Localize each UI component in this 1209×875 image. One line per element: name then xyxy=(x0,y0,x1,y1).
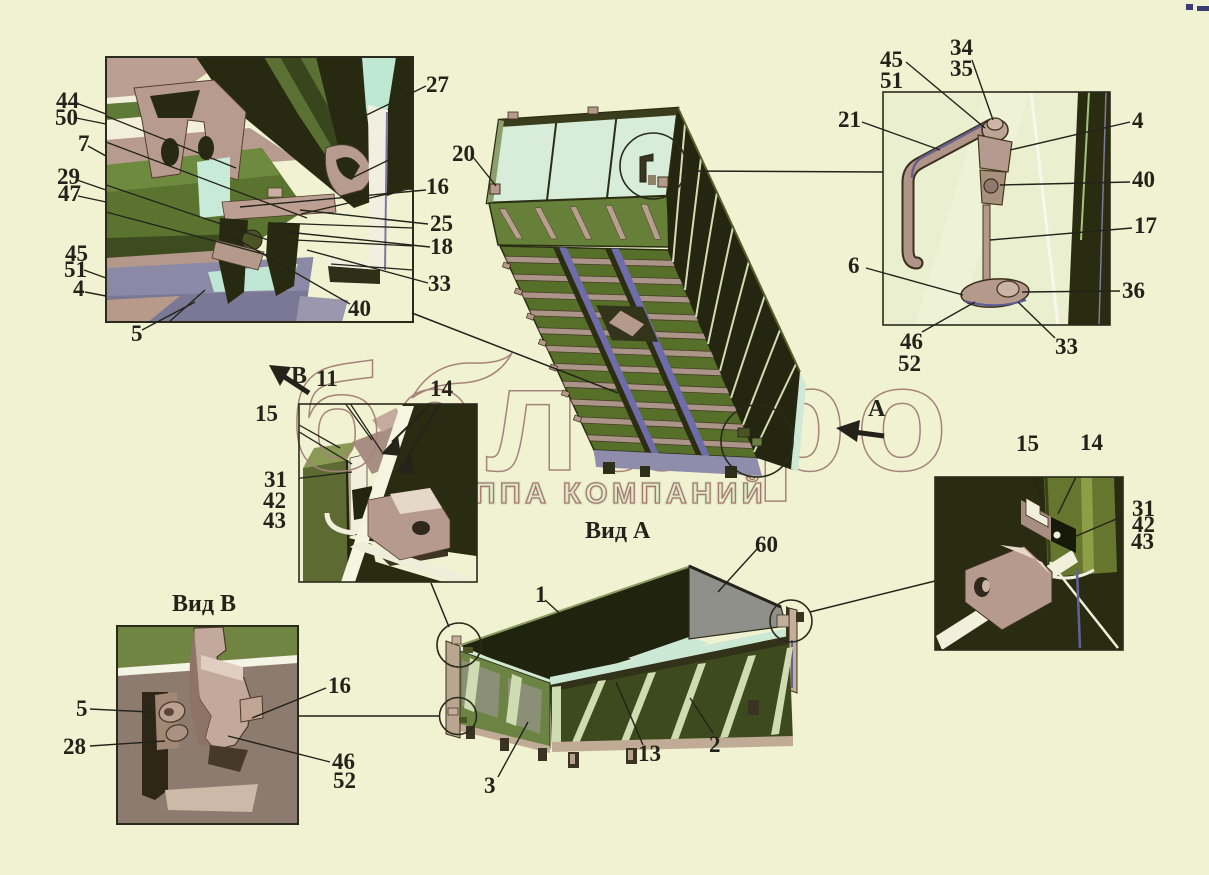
svg-text:5: 5 xyxy=(131,321,143,346)
svg-text:16: 16 xyxy=(328,673,351,698)
svg-text:27: 27 xyxy=(426,72,449,97)
svg-text:11: 11 xyxy=(316,366,338,391)
svg-text:Вид А: Вид А xyxy=(585,518,651,544)
svg-text:50: 50 xyxy=(55,105,78,130)
svg-text:33: 33 xyxy=(428,271,451,296)
svg-text:33: 33 xyxy=(1055,334,1078,359)
svg-text:28: 28 xyxy=(63,734,86,759)
svg-text:В: В xyxy=(291,363,307,389)
svg-text:А: А xyxy=(868,396,886,422)
svg-text:14: 14 xyxy=(430,376,454,401)
svg-text:43: 43 xyxy=(263,508,286,533)
svg-text:43: 43 xyxy=(1131,529,1154,554)
svg-text:15: 15 xyxy=(1016,431,1039,456)
svg-text:Вид В: Вид В xyxy=(172,591,236,617)
svg-text:25: 25 xyxy=(430,211,453,236)
svg-text:51: 51 xyxy=(880,68,903,93)
svg-text:7: 7 xyxy=(78,131,90,156)
svg-text:16: 16 xyxy=(426,174,449,199)
svg-text:4: 4 xyxy=(73,276,85,301)
svg-text:14: 14 xyxy=(1080,430,1104,455)
svg-text:52: 52 xyxy=(333,768,356,793)
svg-text:40: 40 xyxy=(1132,167,1155,192)
svg-text:3: 3 xyxy=(484,773,496,798)
svg-text:52: 52 xyxy=(898,351,921,376)
svg-text:15: 15 xyxy=(255,401,278,426)
svg-text:5: 5 xyxy=(76,696,88,721)
svg-text:17: 17 xyxy=(1134,213,1157,238)
svg-text:60: 60 xyxy=(755,532,778,557)
svg-text:35: 35 xyxy=(950,56,973,81)
svg-text:4: 4 xyxy=(1132,108,1144,133)
svg-text:13: 13 xyxy=(638,741,661,766)
svg-text:1: 1 xyxy=(535,582,547,607)
svg-text:20: 20 xyxy=(452,141,475,166)
svg-text:6: 6 xyxy=(848,253,860,278)
svg-text:40: 40 xyxy=(348,296,371,321)
svg-text:21: 21 xyxy=(838,107,861,132)
svg-text:47: 47 xyxy=(58,181,81,206)
svg-text:36: 36 xyxy=(1122,278,1145,303)
svg-text:18: 18 xyxy=(430,234,453,259)
svg-text:2: 2 xyxy=(709,732,721,757)
